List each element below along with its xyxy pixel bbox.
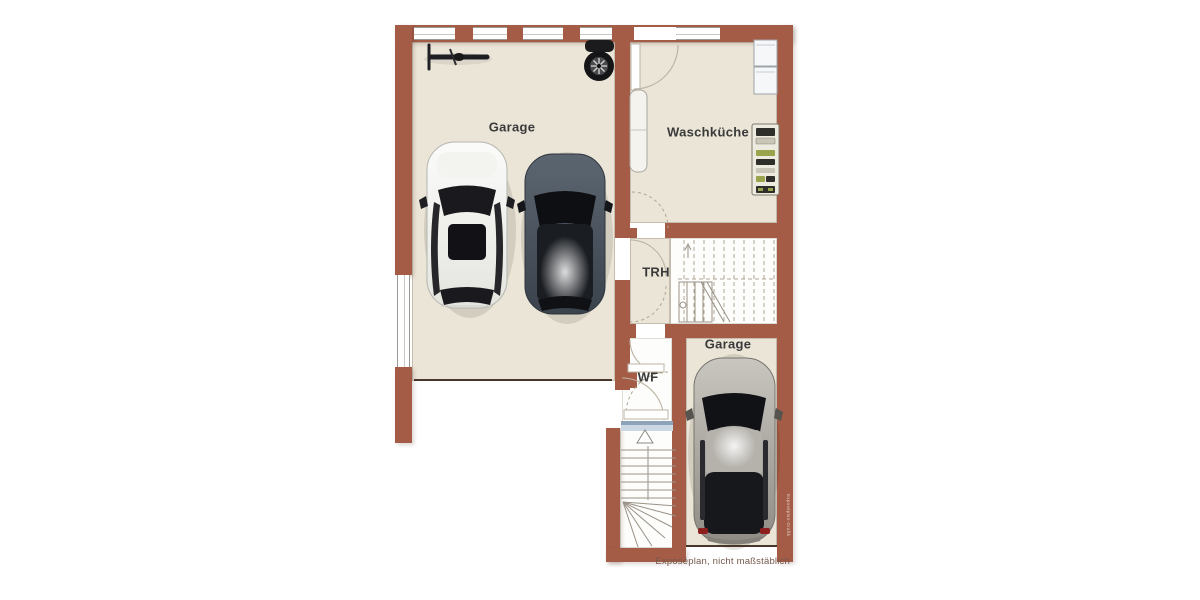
window (676, 27, 720, 40)
room-floor-trh-stairs (670, 238, 777, 324)
garage-door-left (414, 379, 612, 381)
wall-mid-foot (630, 370, 637, 388)
room-label-trh: TRH (642, 265, 670, 280)
wall-stairwell-left (606, 428, 620, 562)
wall-left-stub (395, 367, 412, 443)
floor-divider (670, 238, 671, 324)
room-label-waschkueche: Waschküche (667, 125, 749, 140)
wall-mid-upper (615, 42, 630, 238)
wall-left (395, 25, 412, 275)
floor-plan-canvas: Garage Waschküche TRH WF Garage Exposépl… (0, 0, 1200, 600)
vertical-watermark: Exposéplan-Grafik (783, 494, 791, 550)
window (523, 27, 563, 40)
window (414, 27, 455, 40)
room-label-wf: WF (638, 370, 659, 385)
room-label-garage-left: Garage (489, 120, 536, 135)
wall-waschkueche-trh (665, 223, 777, 238)
room-floor-garage-lower (686, 338, 777, 547)
room-label-garage-lower: Garage (705, 337, 752, 352)
room-floor-trh (630, 238, 670, 324)
window-left (397, 275, 410, 367)
door-opening-waschkueche (634, 27, 676, 40)
window (473, 27, 507, 40)
garage-door-lower (686, 545, 777, 547)
room-floor-stairwell (620, 428, 677, 548)
plan-caption: Exposéplan, nicht maßstäblich (655, 556, 790, 567)
door-jamb-waschkueche (630, 228, 637, 238)
window (580, 27, 612, 40)
wall-right (777, 25, 793, 562)
room-floor-garage-left (412, 42, 615, 381)
wall-mid-lower (615, 280, 630, 390)
door-jamb-wf (630, 324, 636, 338)
wall-wf-garage (672, 338, 686, 548)
